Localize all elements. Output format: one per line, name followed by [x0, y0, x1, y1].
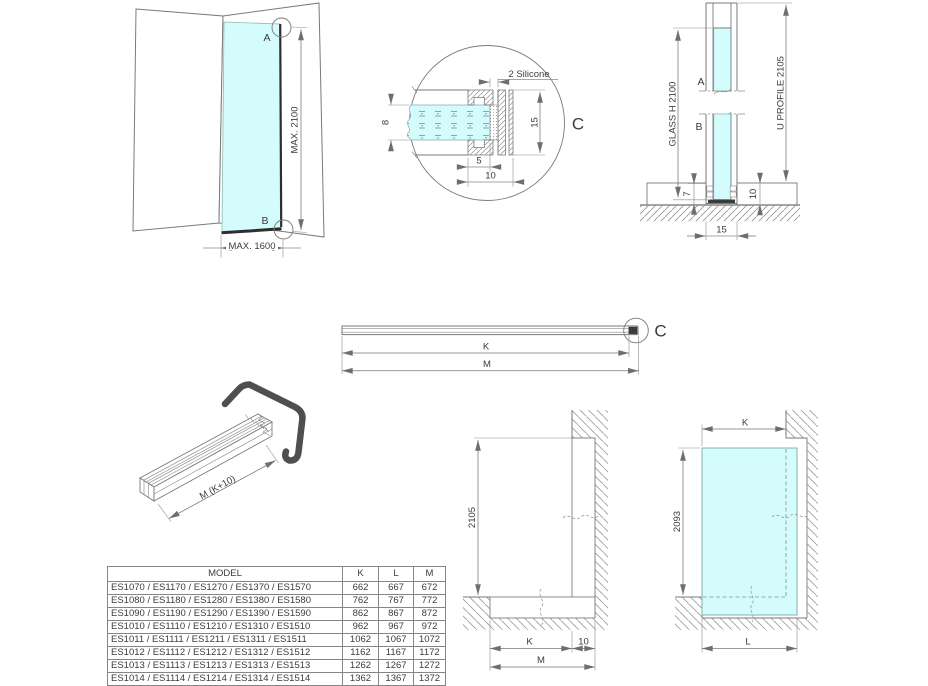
profile-height-dim-label: 15 [530, 117, 541, 128]
wall-depth-dim-label: 10 [578, 637, 589, 648]
fixing-clip [730, 192, 736, 197]
outer-width-dim-label: 10 [485, 171, 496, 182]
glass-panel [702, 448, 797, 615]
col-header-k: K [343, 567, 379, 582]
detail-c-view: 8 15 5 10 2 Silicone C [381, 46, 585, 201]
floor-depth-dim-label: 10 [748, 189, 759, 200]
glass-elevation-view: K 2093 L [672, 410, 818, 653]
inner-depth-dim-label: 5 [476, 156, 481, 167]
l-cell: 1367 [379, 673, 414, 686]
profile-web-outer [509, 90, 513, 155]
model-cell: ES1070 / ES1170 / ES1270 / ES1370 / ES15… [108, 582, 343, 595]
table-row: ES1012 / ES1112 / ES1212 / ES1312 / ES15… [108, 647, 446, 660]
silicone-section [490, 105, 498, 140]
elevation-view: 2105 K 10 M [463, 410, 608, 671]
glass-height-dim-label: 2093 [672, 511, 683, 532]
profile-3d-view: M (K+10) [140, 385, 303, 522]
profile-width-dim-label: 15 [716, 225, 727, 236]
glass-lower [714, 114, 731, 200]
bottom-gasket [708, 200, 735, 204]
model-cell: ES1010 / ES1110 / ES1210 / ES1310 / ES15… [108, 621, 343, 634]
table-row: ES1070 / ES1170 / ES1270 / ES1370 / ES15… [108, 582, 446, 595]
m-cell: 972 [414, 621, 446, 634]
profile-height-dim-label: 2105 [467, 507, 478, 528]
m-cell: 1172 [414, 647, 446, 660]
left-wall [133, 9, 223, 231]
profile-web-inner [498, 90, 506, 155]
m-cell: 1372 [414, 673, 446, 686]
profile-bottom-flange [468, 140, 493, 155]
m-cell: 772 [414, 595, 446, 608]
m-dim-label: M [537, 655, 545, 666]
k-dim-label: K [742, 418, 749, 429]
model-cell: ES1014 / ES1114 / ES1214 / ES1314 / ES15… [108, 673, 343, 686]
wall-profile-edge [280, 24, 281, 227]
m-cell: 872 [414, 608, 446, 621]
bar-m-dim-label: M [483, 359, 491, 370]
bar-k-dim-label: K [483, 342, 490, 353]
profile-bar-view: C K M [342, 318, 667, 374]
k-cell: 862 [343, 608, 379, 621]
size-table-header-row: MODEL K L M [108, 567, 446, 582]
k-cell: 762 [343, 595, 379, 608]
silicone-label: 2 Silicone [508, 69, 549, 80]
fixing-clip [707, 192, 713, 197]
floor-block-right [737, 183, 797, 205]
col-header-m: M [414, 567, 446, 582]
size-table: MODEL K L M ES1070 / ES1170 / ES1270 / E… [107, 566, 446, 686]
l-cell: 667 [379, 582, 414, 595]
point-a-label: A [697, 76, 704, 88]
k-cell: 1062 [343, 634, 379, 647]
u-profile-dim-label: U PROFILE 2105 [776, 56, 787, 130]
glass-offset-dim-label: 7 [682, 191, 693, 196]
model-cell: ES1011 / ES1111 / ES1211 / ES1311 / ES15… [108, 634, 343, 647]
profile-top-face [140, 414, 272, 487]
table-row: ES1014 / ES1114 / ES1214 / ES1314 / ES15… [108, 673, 446, 686]
fixing-clip [707, 186, 713, 191]
model-cell: ES1013 / ES1113 / ES1213 / ES1313 / ES15… [108, 660, 343, 673]
table-row: ES1013 / ES1113 / ES1213 / ES1313 / ES15… [108, 660, 446, 673]
l-dim-label: L [745, 637, 750, 648]
floor-block-left [647, 183, 706, 205]
installation-view: A B MAX. 2100 MAX. 1600 [133, 3, 324, 258]
glass-section [407, 105, 490, 140]
table-row: ES1011 / ES1111 / ES1211 / ES1311 / ES15… [108, 634, 446, 647]
k-cell: 962 [343, 621, 379, 634]
detail-c-callout-label: C [572, 115, 584, 134]
fixing-clip [730, 186, 736, 191]
vertical-profile [572, 438, 595, 599]
l-cell: 967 [379, 621, 414, 634]
m-cell: 1072 [414, 634, 446, 647]
glass-height-dim-label: GLASS H 2100 [668, 82, 679, 147]
profile-length-dim-label: M (K+10) [198, 473, 238, 502]
table-row: ES1080 / ES1180 / ES1280 / ES1380 / ES15… [108, 595, 446, 608]
floor-hatch [640, 206, 800, 222]
l-cell: 1067 [379, 634, 414, 647]
m-cell: 1272 [414, 660, 446, 673]
bar-callout-label: C [654, 322, 666, 341]
max-width-dim-label: MAX. 1600 [229, 241, 276, 252]
model-cell: ES1012 / ES1112 / ES1212 / ES1312 / ES15… [108, 647, 343, 660]
k-cell: 662 [343, 582, 379, 595]
end-cap [629, 327, 638, 334]
col-header-model: MODEL [108, 567, 343, 582]
k-cell: 1362 [343, 673, 379, 686]
l-cell: 1167 [379, 647, 414, 660]
l-cell: 1267 [379, 660, 414, 673]
glass-panel [222, 22, 281, 232]
l-cell: 767 [379, 595, 414, 608]
col-header-l: L [379, 567, 414, 582]
glass-thickness-dim-label: 8 [381, 120, 392, 125]
l-cell: 867 [379, 608, 414, 621]
model-cell: ES1080 / ES1180 / ES1280 / ES1380 / ES15… [108, 595, 343, 608]
point-a-label: A [263, 32, 270, 44]
k-cell: 1162 [343, 647, 379, 660]
m-cell: 672 [414, 582, 446, 595]
table-row: ES1010 / ES1110 / ES1210 / ES1310 / ES15… [108, 621, 446, 634]
k-cell: 1262 [343, 660, 379, 673]
point-b-label: B [695, 121, 702, 133]
size-table-container: MODEL K L M ES1070 / ES1170 / ES1270 / E… [107, 566, 446, 686]
model-cell: ES1090 / ES1190 / ES1290 / ES1390 / ES15… [108, 608, 343, 621]
point-b-label: B [261, 215, 268, 227]
max-height-dim-label: MAX. 2100 [290, 107, 301, 154]
glass-upper [714, 28, 731, 91]
section-view: A B GLASS H 2100 U PROFILE 2105 7 10 15 [640, 3, 800, 240]
k-dim-label: K [526, 637, 533, 648]
table-row: ES1090 / ES1190 / ES1290 / ES1390 / ES15… [108, 608, 446, 621]
profile-top-flange [468, 90, 493, 105]
